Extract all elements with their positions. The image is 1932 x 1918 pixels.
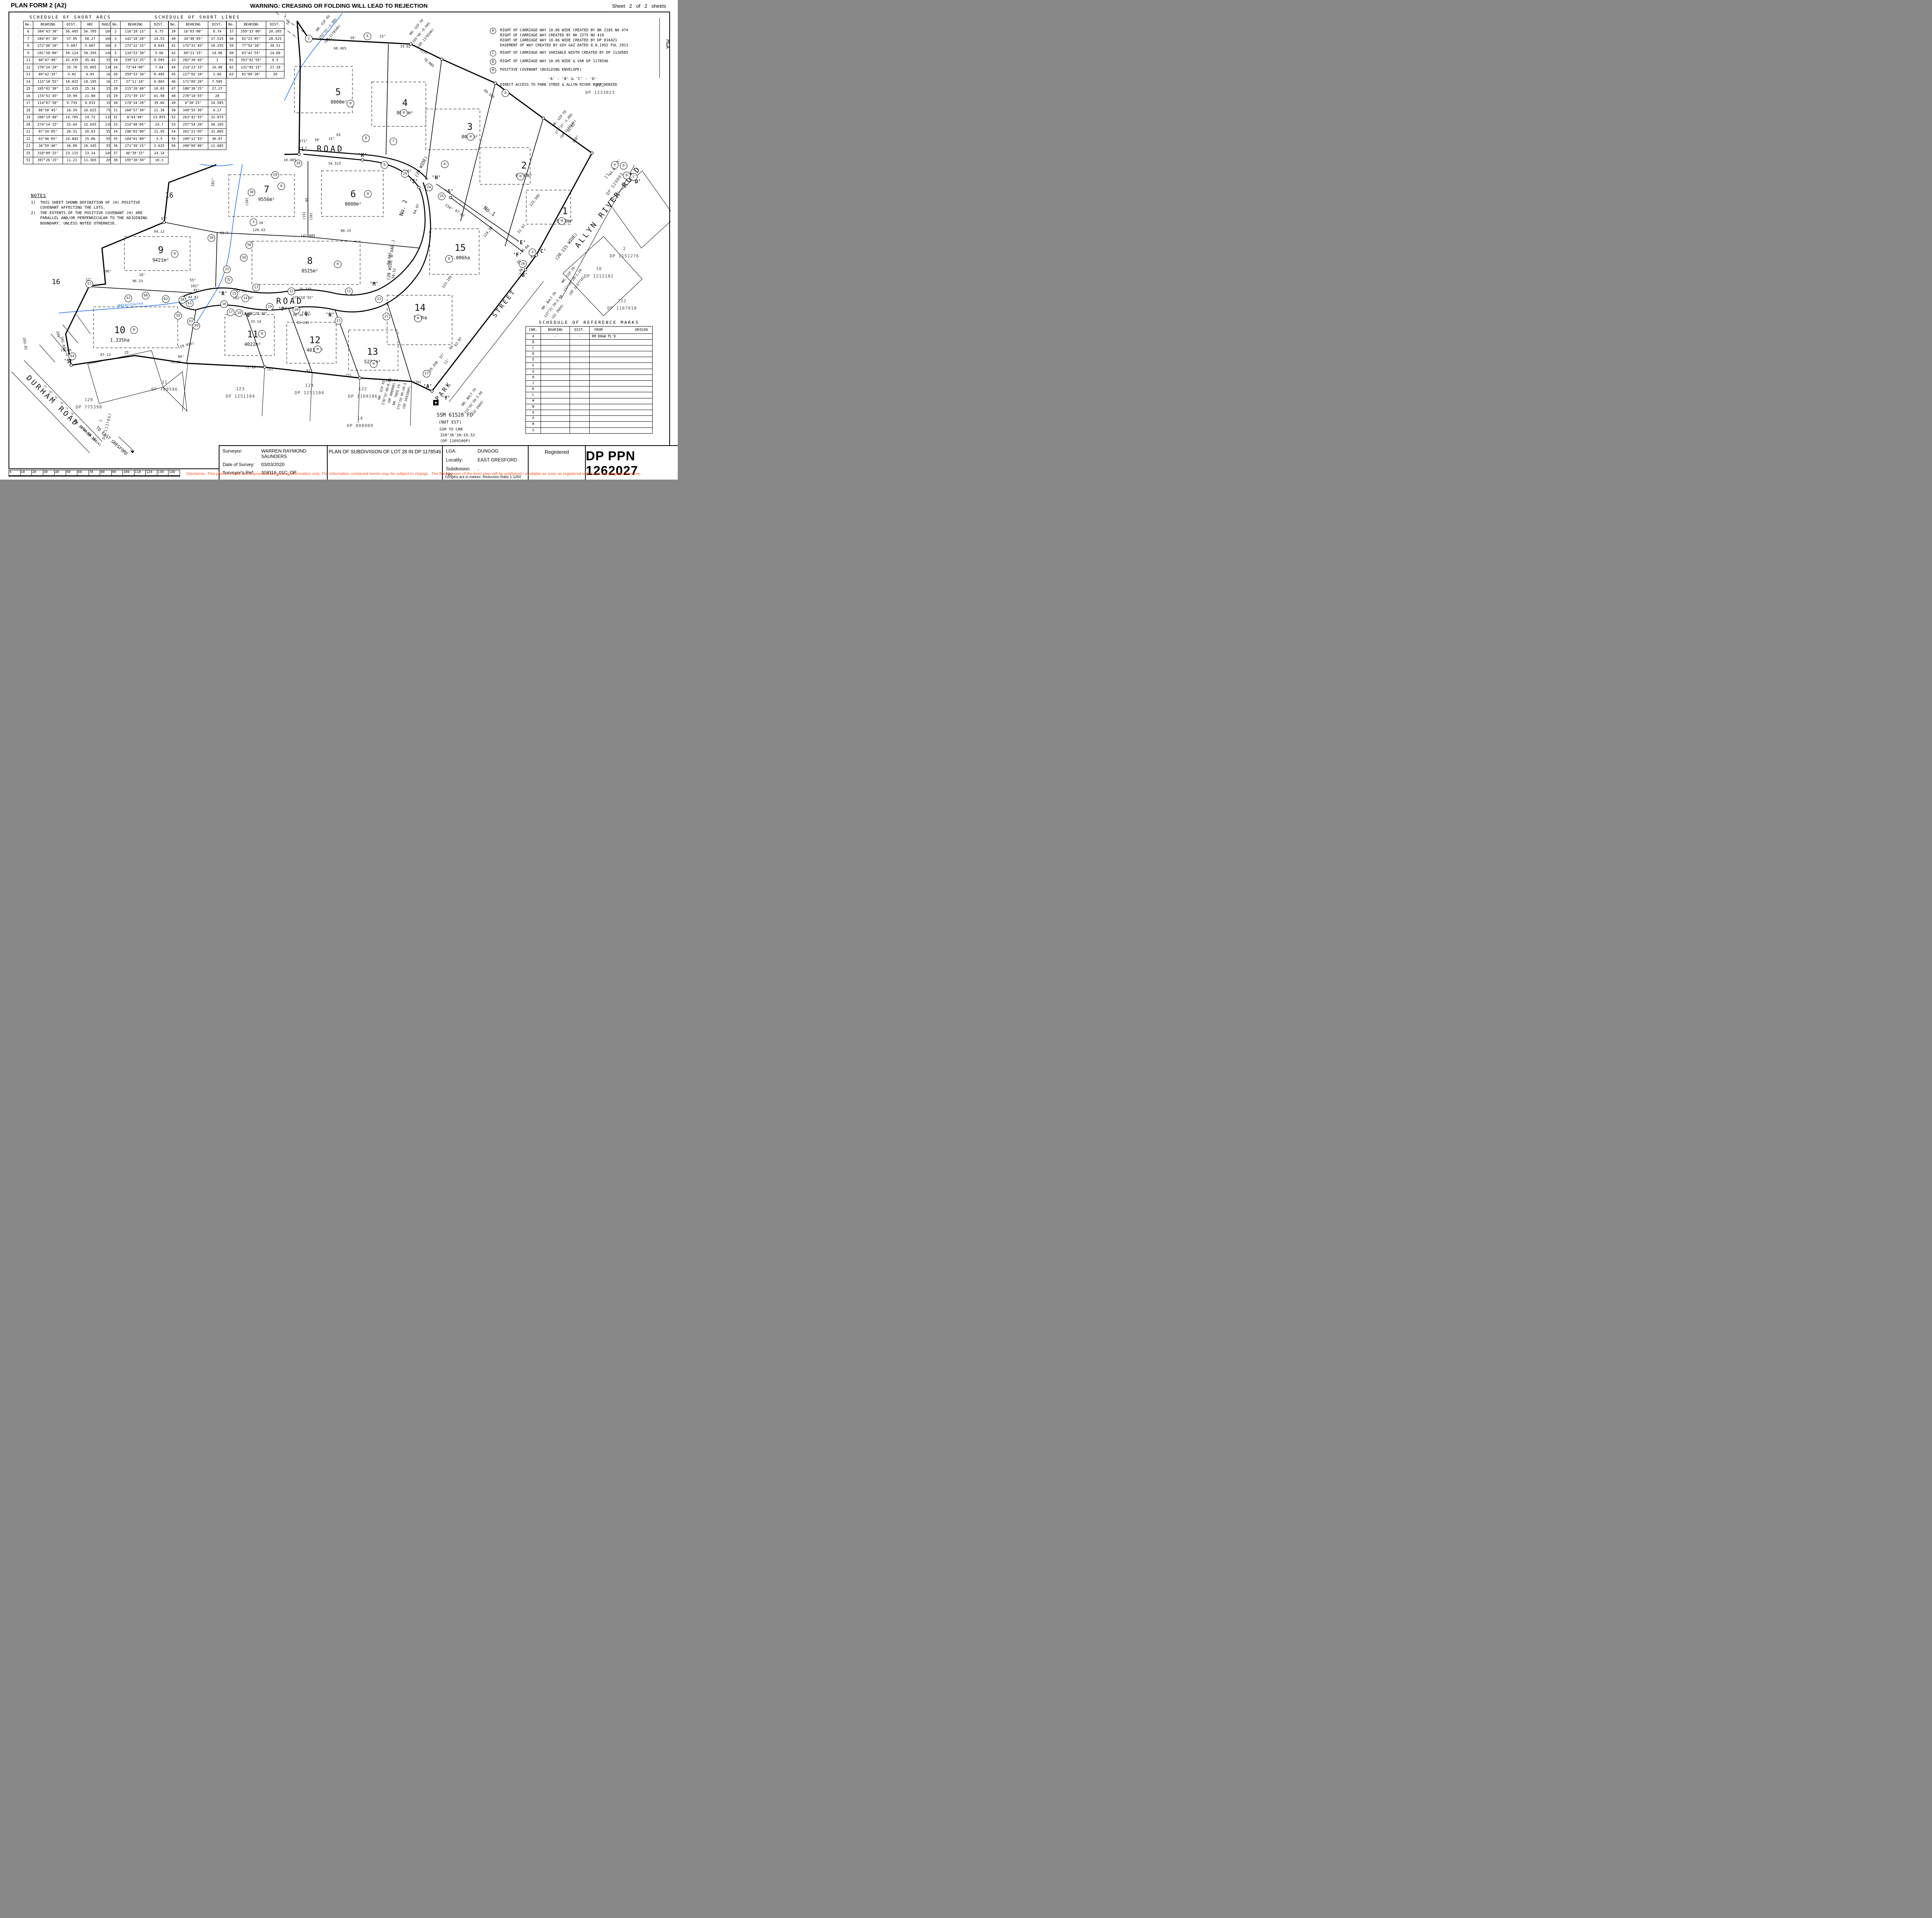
scale-tick: 0 [9,470,20,475]
table-cell: 6.75 [150,28,168,36]
scale-tick: 50 [66,470,78,475]
circled-mark-label: H [261,332,263,336]
table-cell: P [526,416,541,422]
plan-sheet: PLAN FORM 2 (A2) WARNING: CREASING OR FO… [0,0,678,480]
table-cell: 2 [111,28,121,36]
of-word: of [636,3,640,9]
notes-title: NOTES [31,193,158,199]
sheets-word: sheets [651,3,666,9]
table-cell [541,351,570,357]
map-label: DP 808908 [347,423,374,428]
map-label: 16 [165,191,173,199]
easement-item: DRIGHT OF CARRIAGE WAY 10.06 WIDE & VAR … [490,59,672,65]
map-label: DP 709596 [151,387,178,392]
map-label: 44 [449,345,454,351]
table-row: 28215°20'40"18.03 [111,85,168,93]
table-cell: 87°34'05" [33,128,63,136]
map-label: 51.97 [517,224,527,235]
easement-key-icon: A [490,28,496,34]
table-cell: 274°14'15" [33,121,63,129]
table-cell [590,357,653,363]
table-row: F [526,363,653,369]
table-cell: B [526,339,541,345]
map-label: (20.115 WIDE) [554,232,578,261]
easement-line: EASEMENT OF WAY CREATED BY GOV GAZ DATED… [500,43,628,48]
easement-line: POSITIVE COVENANT (BUILDING ENVELOPE) [500,67,582,72]
table-cell: 81°23'05" [236,36,266,43]
table-cell: 265°02'30" [33,85,63,93]
table-cell: 4.17 [208,107,226,114]
table-cell: 5 [111,50,121,57]
map-label: No. 2 [398,199,408,217]
table-row: 2263°46'05"24.84525.0655 [24,136,117,143]
circled-mark-label: 2 [308,37,310,41]
table-cell: 52 [169,114,179,121]
short-lines-table-3: No.BEARINGDIST. 57359°33'00"20.2055881°2… [226,21,284,78]
table-row: 57359°33'00"20.205 [227,28,284,36]
map-label: 91° [327,38,333,42]
map-label: 15" [328,137,335,141]
table-cell: 15 [24,85,33,93]
table-row: 20274°14'15"15.6415.655110 [24,121,117,129]
table-row: 25310°09'25"23.11523.14140 [24,150,117,157]
scale-tick: 130 [157,470,169,475]
map-label: 203.81 [22,337,27,351]
table-cell: 8 [24,43,33,50]
short-lines-table-2: No.BEARINGDIST. 3916°03'00"8.744034°40'0… [168,21,226,150]
table-row: 48278°18'55"20 [169,93,226,100]
circled-mark-label: 34 [242,256,246,260]
table-cell: J [526,381,541,386]
table-row: 62131°05'15"27.18 [227,64,284,71]
map-label: 85 [305,198,309,202]
table-cell: 20 [24,121,33,129]
table-row: 3746°39'15"14.14 [111,150,168,157]
col-bearing: BEARING [541,327,570,334]
table-row: J [526,381,653,386]
table-row: 56200°00'00"11.685 [169,143,226,150]
table-row: 53257°54'20"30.105 [169,121,226,129]
map-label: 65 [337,133,341,137]
warning-text: WARNING: CREASING OR FOLDING WILL LEAD T… [0,3,678,9]
scale-tick: 30 [43,470,55,475]
map-label: 8525m² [301,268,318,274]
column-header: BEARING [179,21,208,29]
table-row: 4034°40'05"37.515 [169,36,226,43]
circled-mark-label: H [349,102,351,106]
map-label: (15) [303,211,306,220]
table-cell: 20 [208,93,226,100]
map-label: 98°18'55" [293,313,312,317]
table-cell: 60°21'25" [179,50,208,57]
circled-mark-label: 7 [392,140,394,143]
table-cell: M [526,398,541,404]
table-row: 2336°59'40"26.0926.34555 [24,143,117,150]
table-row: R [526,422,653,427]
table-row: O [526,410,653,415]
map-label: 15" [379,35,386,39]
table-row: 15265°02'30"22.43525.3415 [24,85,117,93]
table-cell: RM DH&W PL'D [590,334,653,339]
table-cell: H [526,374,541,380]
map-label: 7 [264,184,269,195]
table-cell: 42.635 [63,57,81,64]
table-cell: 14.68 [266,50,284,57]
sheet-number: 2 [627,3,635,9]
circled-mark-label: H [133,328,135,332]
ref-dot: . [223,478,224,480]
table-cell [570,422,590,427]
table-cell [541,345,570,351]
table-cell: 271°39'15" [121,93,150,100]
reference-marks-panel: SCHEDULE OF REFERENCE MARKS CNR. BEARING… [526,320,653,434]
table-cell: 261°23'05" [179,128,208,136]
table-cell: 5.66 [150,50,168,57]
table-cell: 39.66 [150,100,168,107]
table-cell: 3 [111,36,121,43]
table-cell: 8.505 [150,57,168,64]
table-cell: 35.895 [81,64,99,71]
table-cell: 304°43'30" [33,28,63,36]
table-cell: 195°30'50" [121,157,150,164]
table-cell: 272°22'15" [121,43,150,50]
plan-frame: 58000m²48000m²38000m²28000m²18000m²79556… [9,12,670,469]
map-label: DP 1233023 [585,90,615,95]
map-label: 50.7 [220,231,228,235]
column-header: No. [169,21,179,29]
table-cell: 56 [169,143,179,150]
table-cell: 22.435 [63,85,81,93]
easement-key-icon: H [490,67,496,73]
circled-mark-label: 26 [521,262,525,266]
table-cell: G [526,369,541,374]
map-label: 'H' [432,175,440,181]
scale-tick: 40 [54,470,66,475]
short-arcs-title: SCHEDULE OF SHORT ARCS [23,15,117,20]
circled-mark-label: 61 [188,301,192,305]
table-row: H [526,374,653,380]
table-row: 7284°07'30"57.9558.27160 [24,36,117,43]
table-cell [590,422,653,427]
table-cell [590,410,653,415]
map-label: 271° [299,140,308,143]
table-cell: 22 [24,136,33,143]
col-from-origin: FROM ORIGIN [590,327,653,334]
circled-mark-label: D [622,164,624,168]
circled-mark-label: 38 [209,236,214,240]
table-row: 17114°07'50"9.7359.91515 [24,100,117,107]
table-cell: 14.86 [208,50,226,57]
access-note: DIRECT ACCESS TO PARK STREE & ALLYN RIVE… [500,82,672,87]
map-label: (NOT EST) [439,420,462,425]
table-cell: 55 [169,136,179,143]
table-cell: 61 [227,57,236,64]
map-label: ROAD [317,144,344,153]
easement-item: CRIGHT OF CARRIAGE WAY VARIABLE WIDTH CR… [490,50,672,56]
table-cell: 310°09'25" [33,150,63,157]
easement-line: RIGHT OF CARRIAGE WAY 10.06 WIDE CREATED… [500,38,628,43]
scale-tick: 110 [134,470,146,475]
circled-mark-label: H [417,317,419,320]
table-cell [570,381,590,386]
sheet-word: Sheet [612,3,625,9]
map-label: 320°36'20~16.52 [440,433,475,437]
circled-mark-label: H [469,135,471,139]
table-row: 2116°18'15"6.75 [111,28,168,36]
table-row: 6381°09'30"20 [227,71,284,78]
table-cell: 37.515 [208,36,226,43]
scale-tick: 70 [89,470,100,475]
map-label: 25' [124,351,131,355]
table-cell [570,416,590,422]
map-label: 9421m² [152,257,169,263]
table-cell: 16 [24,93,33,100]
table-row: 29271°39'15"61.98 [111,93,168,100]
circled-mark-label: 25 [440,194,444,198]
reference-marks-header: CNR. BEARING DIST. FROM ORIGIN [526,327,653,334]
map-label: DP 1169106 [348,394,378,399]
map-label: DP 1251104 [226,394,255,399]
map-label: 'E' [517,240,526,246]
table-row: 9281°58'00"50.12450.395140 [24,50,117,57]
column-header: BEARING [236,21,266,29]
map-label: (19.925) [177,342,194,350]
table-cell: 46°39'15" [121,150,150,157]
map-label: 80.15 [340,229,351,233]
circled-mark-label: 18 [237,311,241,315]
table-cell: 116°18'15" [121,28,150,36]
circled-mark-label: 24 [427,186,431,189]
table-cell [541,404,570,410]
table-cell: 20.205 [266,28,284,36]
map-label: 141.885 [301,234,315,238]
table-row: 8272°40'20"5.6875.687160 [24,43,117,50]
table-row: 52263°42'55"32.075 [169,114,226,121]
map-label: 45° [193,289,199,293]
table-cell: K [526,386,541,392]
table-cell: F [526,363,541,369]
table-cell: 14 [24,78,33,86]
short-lines-table-1: No.BEARINGDIST. 2116°18'15"6.753142°18'2… [111,21,168,164]
table-cell [541,427,570,433]
table-cell: 28.525 [266,36,284,43]
table-cell: 8.74 [208,28,226,36]
map-label: STREET [491,288,517,319]
map-label: 1.335ha [110,337,130,343]
table-cell: 32.005 [208,128,226,136]
map-label: 8000m² [330,99,347,105]
table-cell: 10.195 [81,78,99,86]
table-cell: 49 [169,100,179,107]
table-cell: 178°34'20" [121,100,150,107]
circled-mark-label: 9 [383,163,385,167]
table-row: 26359°53'30"8.485 [111,71,168,78]
table-cell: 30.51 [266,43,284,50]
table-cell: 60°47'40" [33,57,63,64]
circled-mark-label: A [614,163,616,167]
table-row: 33214°40'05"24.7 [111,121,168,129]
table-cell [590,392,653,398]
table-cell: 16°03'00" [179,28,208,36]
table-row: 51307°26'15"11.2111.36520 [24,157,117,164]
table-row: 36271°39'15"2.625 [111,143,168,150]
map-label: 72.18 [245,366,255,369]
table-row: C [526,345,653,351]
table-cell: 15.655 [81,121,99,129]
notes-list: 1)THIS SHEET SHOWN DEFINITION OF (H) POS… [31,200,158,226]
table-cell: 8.845 [150,43,168,50]
map-label: 78.085 [423,57,435,68]
table-cell: 12 [24,64,33,71]
table-cell: 200°00'00" [179,143,208,150]
sheet-counter: Sheet 2 of 2 sheets [612,3,666,9]
scale-tick: 120 [146,470,157,475]
scale-tick: 90 [112,470,123,475]
table-cell: 13 [24,71,33,78]
table-row: 6083°42'55"14.68 [227,50,284,57]
map-label: 21.89 [61,349,71,352]
map-label: (10) [245,197,249,206]
table-row: 6304°43'30"56.48556.785160 [24,28,117,36]
table-cell: 281°58'00" [33,50,63,57]
map-label: (5) [267,368,273,372]
table-row: 1389°42'35"4.024.0316 [24,71,117,78]
table-cell: 257°54'20" [179,121,208,129]
table-cell [590,351,653,357]
table-cell: 338°23'25" [121,57,150,64]
map-label: 8000m² [345,201,361,207]
easement-key-icon: D [490,59,496,65]
map-label: 102° [190,284,199,288]
circled-mark-label: 11 [347,289,351,293]
table-cell: 21.95 [150,128,168,136]
circled-mark-label: 12 [289,289,294,293]
table-cell: 131°05'15" [236,64,266,71]
table-cell [541,369,570,374]
table-cell: 27 [111,78,121,86]
table-cell: 18 [24,107,33,114]
table-cell: 263°42'55" [179,114,208,121]
table-cell: 21.88 [81,93,99,100]
table-cell: 24.845 [63,136,81,143]
table-cell: 5.687 [63,43,81,50]
map-label: 37° [439,352,446,360]
easement-line: RIGHT OF CARRIAGE WAY VARIABLE WIDTH CRE… [500,50,628,55]
map-label: 11 [247,329,259,340]
map-label: (20) [310,212,313,221]
table-cell: A [526,334,541,339]
table-cell [570,392,590,398]
reference-marks-title: SCHEDULE OF REFERENCE MARKS [526,320,653,325]
table-cell: 47 [169,85,179,93]
map-label: 'A' [423,384,432,390]
table-cell: 3.5 [150,136,168,143]
table-row: 5881°23'05"28.525 [227,36,284,43]
table-cell: 160°57'50" [121,107,150,114]
survey-date: 03/03/2020 [261,462,284,467]
short-arcs-panel: SCHEDULE OF SHORT ARCS No.BEARINGDIST.AR… [23,15,117,164]
table-cell: 39 [169,28,179,36]
table-cell [570,357,590,363]
short-lines-panel: SCHEDULE OF SHORT LINES No.BEARINGDIST. … [111,15,284,164]
table-cell: 73°44'00" [121,64,150,71]
easement-line: RIGHT OF CARRIAGE WAY 10.06 WIDE & VAR D… [500,59,608,64]
map-label: 87.13 [100,353,111,357]
table-cell: 134°53'30" [121,50,150,57]
table-cell [570,363,590,369]
map-label: 120.43 [253,228,265,232]
table-cell: 266°19'40" [33,114,63,121]
easement-notes: ARIGHT OF CARRIAGE WAY 10.06 WIDE CREATE… [490,28,672,87]
table-cell: 307°26'15" [33,157,63,164]
table-cell: 27.18 [266,64,284,71]
table-cell: S [526,427,541,433]
circled-mark-label: H [316,347,318,351]
table-cell: 10.025 [63,78,81,86]
table-cell: L [526,392,541,398]
reference-marks-table: CNR. BEARING DIST. FROM ORIGIN A--RM DH&… [526,326,653,434]
map-label: 122 [359,386,367,391]
table-cell [541,422,570,427]
table-cell: 282°39'45" [179,57,208,64]
circled-mark-label: A [366,34,369,38]
table-cell [541,386,570,392]
table-cell: 16.625 [81,107,99,114]
disclaimer-text: Disclaimer: This plan is a draft and is … [186,471,641,476]
table-cell: 59 [227,43,236,50]
table-cell: 20.63 [81,128,99,136]
map-label: 13 [367,346,378,357]
table-row: 19266°19'40"14.70514.72110 [24,114,117,121]
circled-mark-label: 16 [222,302,226,306]
map-label: 'F' [513,252,522,258]
map-label: 2 [521,160,527,171]
map-label: 128° [572,135,580,144]
table-row: 45227°02'10"3.84 [169,71,226,78]
map-label: 'K' [358,153,367,158]
table-cell: 32 [111,114,121,121]
scale-tick: 10 [20,470,32,475]
map-label: 10.485 [284,158,296,162]
circled-mark-label: 62 [164,297,168,301]
table-cell [570,374,590,380]
table-cell: 36 [111,143,121,150]
col-from: FROM [594,328,603,332]
table-row: D [526,351,653,357]
map-label: 12 [310,335,321,345]
map-label: 'G' [444,189,453,195]
table-cell: 284°07'30" [33,36,63,43]
map-label: 3 [467,121,473,132]
table-cell: 50 [169,107,179,114]
table-cell: 174°51'45" [33,93,63,100]
scale-tick: 20 [32,470,43,475]
table-row: K [526,386,653,392]
table-cell: 58 [227,36,236,43]
table-cell: 9 [24,50,33,57]
table-cell: 31 [111,107,121,114]
table-cell [570,351,590,357]
table-cell: 40 [169,36,179,43]
table-cell: 61.98 [150,93,168,100]
scale-tick: 100 [123,470,134,475]
circled-mark-label: H [372,362,374,366]
table-row: 1888°50'45"16.5916.62575 [24,107,117,114]
scale-tick: 80 [100,470,112,475]
table-cell [570,398,590,404]
table-cell: 23 [24,143,33,150]
table-cell: 4.02 [63,71,81,78]
